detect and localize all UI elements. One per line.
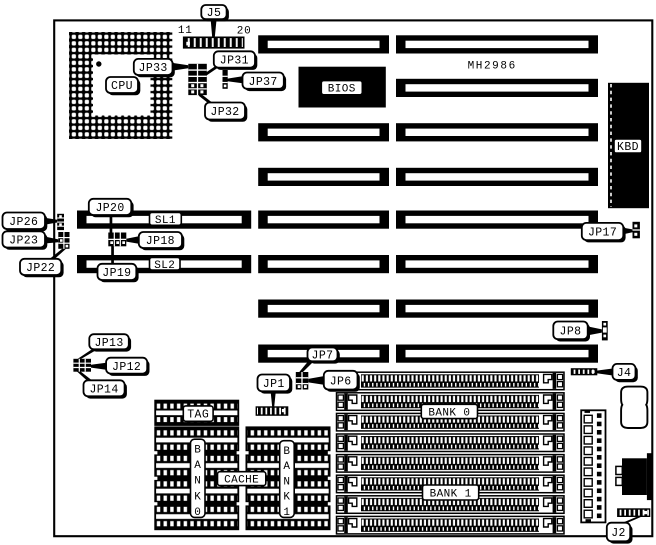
svg-text:11: 11 — [178, 25, 193, 37]
svg-text:KBD: KBD — [617, 141, 639, 154]
svg-text:JP37: JP37 — [249, 76, 278, 89]
svg-text:JP19: JP19 — [102, 267, 131, 280]
svg-text:20: 20 — [237, 25, 252, 37]
svg-text:JP26: JP26 — [9, 216, 38, 229]
svg-text:JP13: JP13 — [94, 337, 123, 350]
svg-text:K: K — [194, 491, 201, 503]
svg-text:CPU: CPU — [111, 80, 133, 93]
svg-text:B: B — [194, 445, 201, 457]
svg-text:J2: J2 — [611, 527, 626, 540]
svg-text:JP8: JP8 — [560, 325, 582, 338]
svg-text:1: 1 — [283, 507, 290, 519]
svg-text:JP6: JP6 — [330, 375, 352, 388]
svg-text:TAG: TAG — [187, 409, 209, 422]
svg-text:JP31: JP31 — [220, 55, 249, 68]
svg-text:K: K — [283, 492, 290, 504]
svg-text:MH2986: MH2986 — [468, 60, 517, 72]
svg-text:0: 0 — [194, 507, 201, 519]
svg-text:JP32: JP32 — [210, 106, 239, 119]
svg-text:CACHE: CACHE — [224, 475, 259, 487]
svg-text:J4: J4 — [617, 367, 632, 380]
svg-text:JP22: JP22 — [26, 262, 55, 275]
svg-text:JP14: JP14 — [89, 383, 118, 396]
svg-text:JP12: JP12 — [112, 361, 141, 374]
svg-text:JP20: JP20 — [95, 202, 124, 215]
svg-text:JP18: JP18 — [146, 235, 175, 248]
svg-text:JP1: JP1 — [263, 378, 285, 391]
svg-text:N: N — [283, 476, 290, 488]
svg-text:SL2: SL2 — [154, 260, 175, 272]
svg-text:A: A — [283, 461, 290, 473]
svg-text:B: B — [283, 446, 290, 458]
svg-text:JP7: JP7 — [312, 350, 334, 363]
svg-text:JP33: JP33 — [139, 62, 168, 75]
svg-text:JP23: JP23 — [9, 235, 38, 248]
svg-text:BIOS: BIOS — [328, 84, 356, 96]
svg-text:SL1: SL1 — [155, 215, 176, 227]
svg-text:BANK 1: BANK 1 — [430, 489, 472, 501]
svg-text:N: N — [194, 476, 201, 488]
svg-text:J5: J5 — [207, 7, 222, 20]
svg-text:JP17: JP17 — [588, 227, 617, 240]
svg-text:A: A — [194, 460, 201, 472]
svg-text:BANK 0: BANK 0 — [428, 407, 470, 419]
